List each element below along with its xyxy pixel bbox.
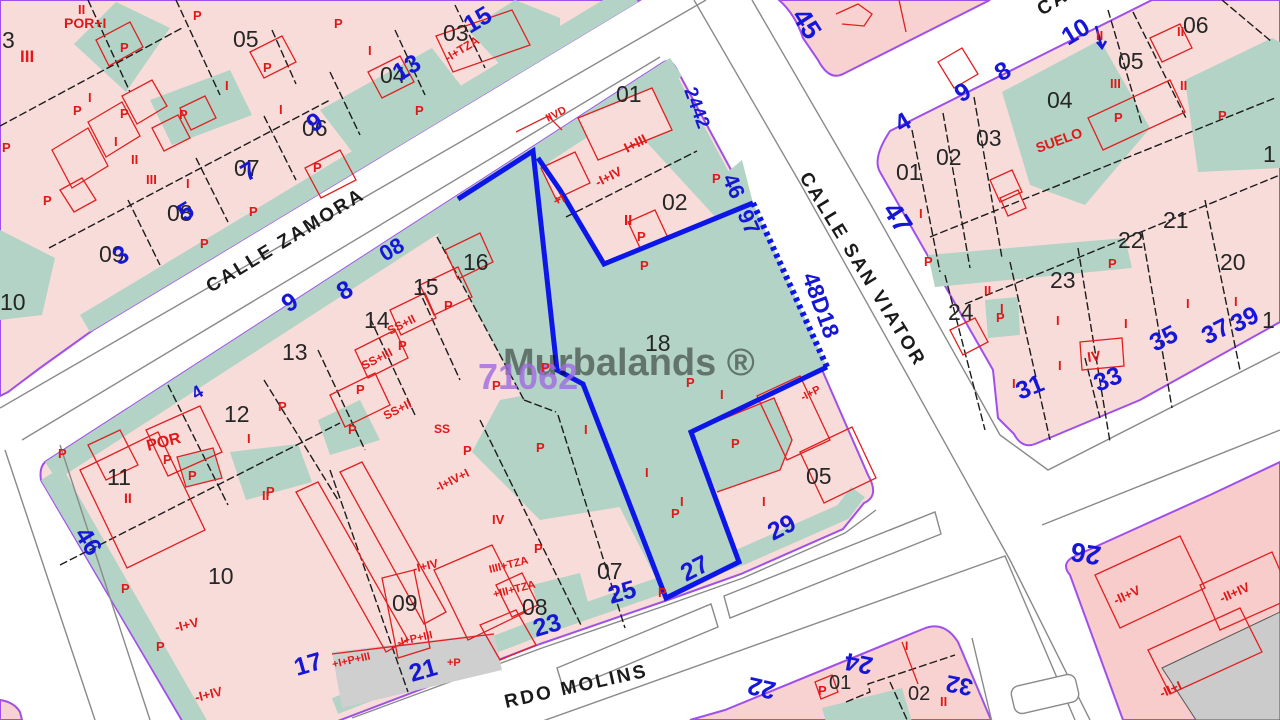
svg-text:II: II bbox=[624, 212, 632, 229]
svg-text:I: I bbox=[279, 102, 283, 117]
svg-text:I: I bbox=[1056, 313, 1060, 328]
svg-text:III: III bbox=[20, 47, 34, 66]
svg-text:I: I bbox=[225, 78, 229, 93]
svg-text:10: 10 bbox=[0, 289, 26, 315]
svg-text:P: P bbox=[200, 236, 209, 251]
svg-text:II: II bbox=[262, 488, 269, 503]
svg-text:II: II bbox=[1096, 28, 1103, 43]
svg-text:P: P bbox=[671, 506, 680, 521]
svg-text:I: I bbox=[905, 639, 908, 653]
svg-text:P: P bbox=[120, 40, 129, 55]
svg-text:P: P bbox=[193, 8, 202, 23]
svg-text:P: P bbox=[492, 378, 501, 393]
svg-text:23: 23 bbox=[1050, 267, 1076, 293]
svg-text:P: P bbox=[415, 103, 424, 118]
svg-text:II: II bbox=[78, 2, 85, 17]
svg-text:I: I bbox=[1186, 296, 1190, 311]
svg-text:P: P bbox=[536, 440, 545, 455]
svg-text:P: P bbox=[313, 160, 322, 175]
svg-text:15: 15 bbox=[413, 274, 439, 300]
svg-text:32: 32 bbox=[944, 669, 975, 701]
svg-text:1: 1 bbox=[1263, 141, 1276, 167]
svg-text:20: 20 bbox=[1220, 249, 1246, 275]
svg-text:I: I bbox=[1000, 301, 1004, 316]
svg-text:P: P bbox=[463, 443, 472, 458]
svg-text:I: I bbox=[720, 387, 724, 402]
svg-text:P: P bbox=[58, 446, 67, 461]
svg-text:05: 05 bbox=[806, 463, 832, 489]
svg-text:16: 16 bbox=[463, 249, 489, 275]
svg-text:P: P bbox=[686, 375, 695, 390]
svg-text:21: 21 bbox=[1163, 207, 1189, 233]
svg-text:P: P bbox=[637, 229, 646, 244]
svg-text:I: I bbox=[1058, 358, 1062, 373]
svg-text:I: I bbox=[368, 43, 372, 58]
svg-text:03: 03 bbox=[976, 125, 1002, 151]
svg-text:I: I bbox=[645, 465, 649, 480]
svg-text:12: 12 bbox=[224, 401, 250, 427]
svg-text:22: 22 bbox=[1118, 227, 1144, 253]
svg-text:II: II bbox=[1180, 78, 1187, 93]
svg-text:02: 02 bbox=[936, 144, 962, 170]
svg-text:P: P bbox=[156, 639, 165, 654]
svg-text:II: II bbox=[124, 490, 132, 506]
svg-text:P: P bbox=[1108, 256, 1117, 271]
svg-text:I: I bbox=[919, 206, 923, 221]
svg-text:P: P bbox=[818, 683, 827, 698]
svg-text:P: P bbox=[73, 103, 82, 118]
svg-text:II: II bbox=[131, 152, 138, 167]
svg-text:24: 24 bbox=[842, 647, 875, 680]
svg-text:P: P bbox=[249, 204, 258, 219]
svg-text:IV: IV bbox=[492, 512, 505, 527]
svg-text:P: P bbox=[541, 360, 550, 375]
svg-text:SS: SS bbox=[434, 422, 450, 436]
svg-text:I: I bbox=[247, 431, 251, 446]
svg-text:I: I bbox=[1012, 376, 1016, 391]
svg-text:P: P bbox=[534, 541, 543, 556]
svg-text:02: 02 bbox=[662, 189, 688, 215]
svg-text:09: 09 bbox=[392, 590, 418, 616]
svg-text:P: P bbox=[712, 171, 721, 186]
svg-text:P: P bbox=[179, 107, 188, 122]
svg-text:P: P bbox=[640, 258, 649, 273]
svg-text:P: P bbox=[924, 254, 933, 269]
svg-text:P: P bbox=[121, 581, 130, 596]
svg-text:18: 18 bbox=[645, 330, 671, 356]
svg-text:1: 1 bbox=[1262, 307, 1275, 333]
svg-text:04: 04 bbox=[1047, 87, 1073, 113]
svg-text:01: 01 bbox=[896, 159, 922, 185]
svg-text:13: 13 bbox=[282, 339, 308, 365]
svg-text:P: P bbox=[188, 468, 197, 483]
svg-text:01: 01 bbox=[616, 81, 642, 107]
svg-text:III: III bbox=[1110, 76, 1121, 91]
svg-text:24: 24 bbox=[948, 299, 974, 325]
svg-text:11: 11 bbox=[107, 464, 131, 490]
svg-text:I: I bbox=[584, 422, 588, 437]
svg-text:05: 05 bbox=[1118, 48, 1144, 74]
svg-text:P: P bbox=[1114, 110, 1123, 125]
svg-text:P: P bbox=[278, 399, 287, 414]
svg-text:I: I bbox=[88, 90, 92, 105]
svg-text:P: P bbox=[444, 298, 453, 313]
svg-text:P: P bbox=[1218, 108, 1227, 123]
svg-text:10: 10 bbox=[208, 563, 234, 589]
svg-text:I: I bbox=[186, 176, 190, 191]
svg-text:P: P bbox=[263, 60, 272, 75]
svg-text:P: P bbox=[398, 338, 407, 353]
svg-text:P: P bbox=[334, 16, 343, 31]
svg-text:P: P bbox=[163, 452, 172, 467]
svg-text:3: 3 bbox=[2, 27, 15, 53]
svg-text:P: P bbox=[348, 422, 357, 437]
svg-text:II: II bbox=[940, 694, 947, 709]
svg-text:I: I bbox=[114, 134, 118, 149]
svg-text:26: 26 bbox=[1069, 536, 1103, 570]
svg-text:I: I bbox=[1124, 316, 1128, 331]
svg-text:I: I bbox=[680, 494, 684, 509]
svg-text:05: 05 bbox=[233, 26, 259, 52]
svg-text:P: P bbox=[356, 382, 365, 397]
svg-text:II: II bbox=[984, 283, 991, 298]
svg-text:POR+I: POR+I bbox=[64, 15, 106, 31]
svg-text:02: 02 bbox=[908, 683, 930, 705]
svg-text:II: II bbox=[1177, 24, 1184, 39]
svg-text:P: P bbox=[120, 106, 129, 121]
svg-text:III: III bbox=[146, 172, 157, 187]
svg-text:I: I bbox=[1234, 294, 1238, 309]
svg-text:P: P bbox=[43, 193, 52, 208]
svg-text:P: P bbox=[658, 585, 667, 600]
svg-text:P: P bbox=[731, 436, 740, 451]
svg-text:P: P bbox=[2, 140, 11, 155]
svg-text:06: 06 bbox=[1183, 12, 1209, 38]
svg-text:+P: +P bbox=[447, 657, 461, 669]
svg-text:I: I bbox=[762, 494, 766, 509]
